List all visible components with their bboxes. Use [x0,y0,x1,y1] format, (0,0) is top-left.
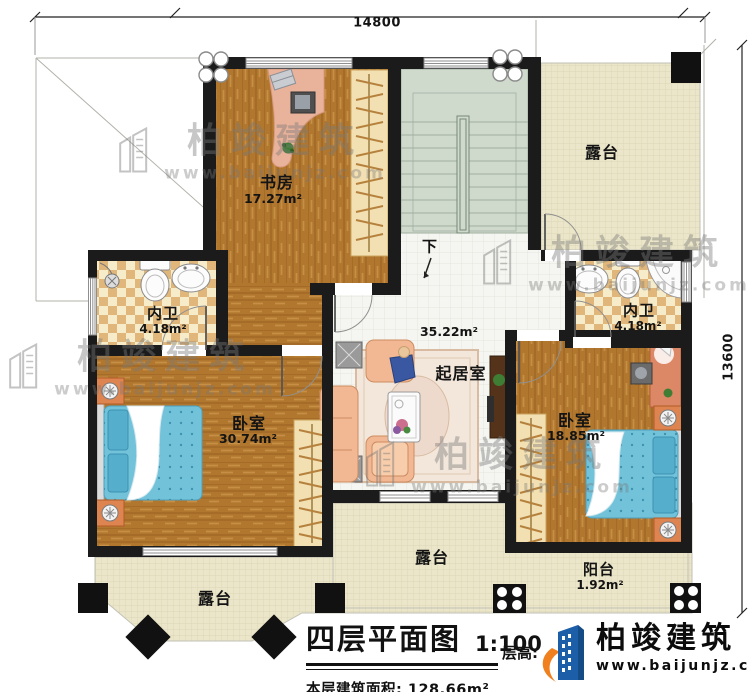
room-label-bedroom-left: 卧室 [232,416,266,432]
floor-height-label: 层高: [502,642,538,663]
room-area-bedroom-right: 18.85m² [547,430,605,443]
floor-plan-page: 柏竣建筑 www.baijunjz.com 柏竣建筑 www.baijunjz.… [0,0,750,692]
floor-area-value: 128.66m² [408,682,489,692]
room-label-terrace-bottom-left: 露台 [198,591,232,607]
living-room-furniture [320,340,506,482]
room-label-terrace-top-right: 露台 [585,145,619,161]
room-area-study: 17.27m² [244,193,302,206]
room-area-bath-right: 4.18m² [614,320,661,332]
room-label-bedroom-right: 卧室 [558,413,592,429]
room-label-bath-right: 内卫 [623,304,655,319]
logo-brand-text: 柏竣建筑 [596,622,750,655]
plan-title: 四层平面图 [306,616,461,658]
brand-logo: 柏竣建筑 www.baijunjz.com [536,622,750,684]
room-area-balcony: 1.92m² [576,579,623,591]
title-underline-thin [306,669,498,670]
room-label-study: 书房 [260,175,294,191]
room-area-bedroom-left: 30.74m² [219,433,277,446]
dimension-top: 14800 [353,17,401,30]
floor-area-label: 本层建筑面积: [306,682,402,692]
floor-plan-canvas [0,0,750,692]
room-area-bath-left: 4.18m² [139,323,186,335]
room-label-balcony: 阳台 [583,563,615,578]
room-label-terrace-bottom-center: 露台 [415,550,449,566]
logo-building-icon [536,622,592,684]
title-underline [306,663,498,666]
room-label-living: 起居室 [435,366,486,382]
room-label-bath-left: 内卫 [147,307,179,322]
room-area-living: 35.22m² [420,326,478,339]
logo-url-text: www.baijunjz.com [596,658,750,674]
stairs-down-label: 下 [422,240,438,255]
dimension-right: 13600 [723,333,736,381]
